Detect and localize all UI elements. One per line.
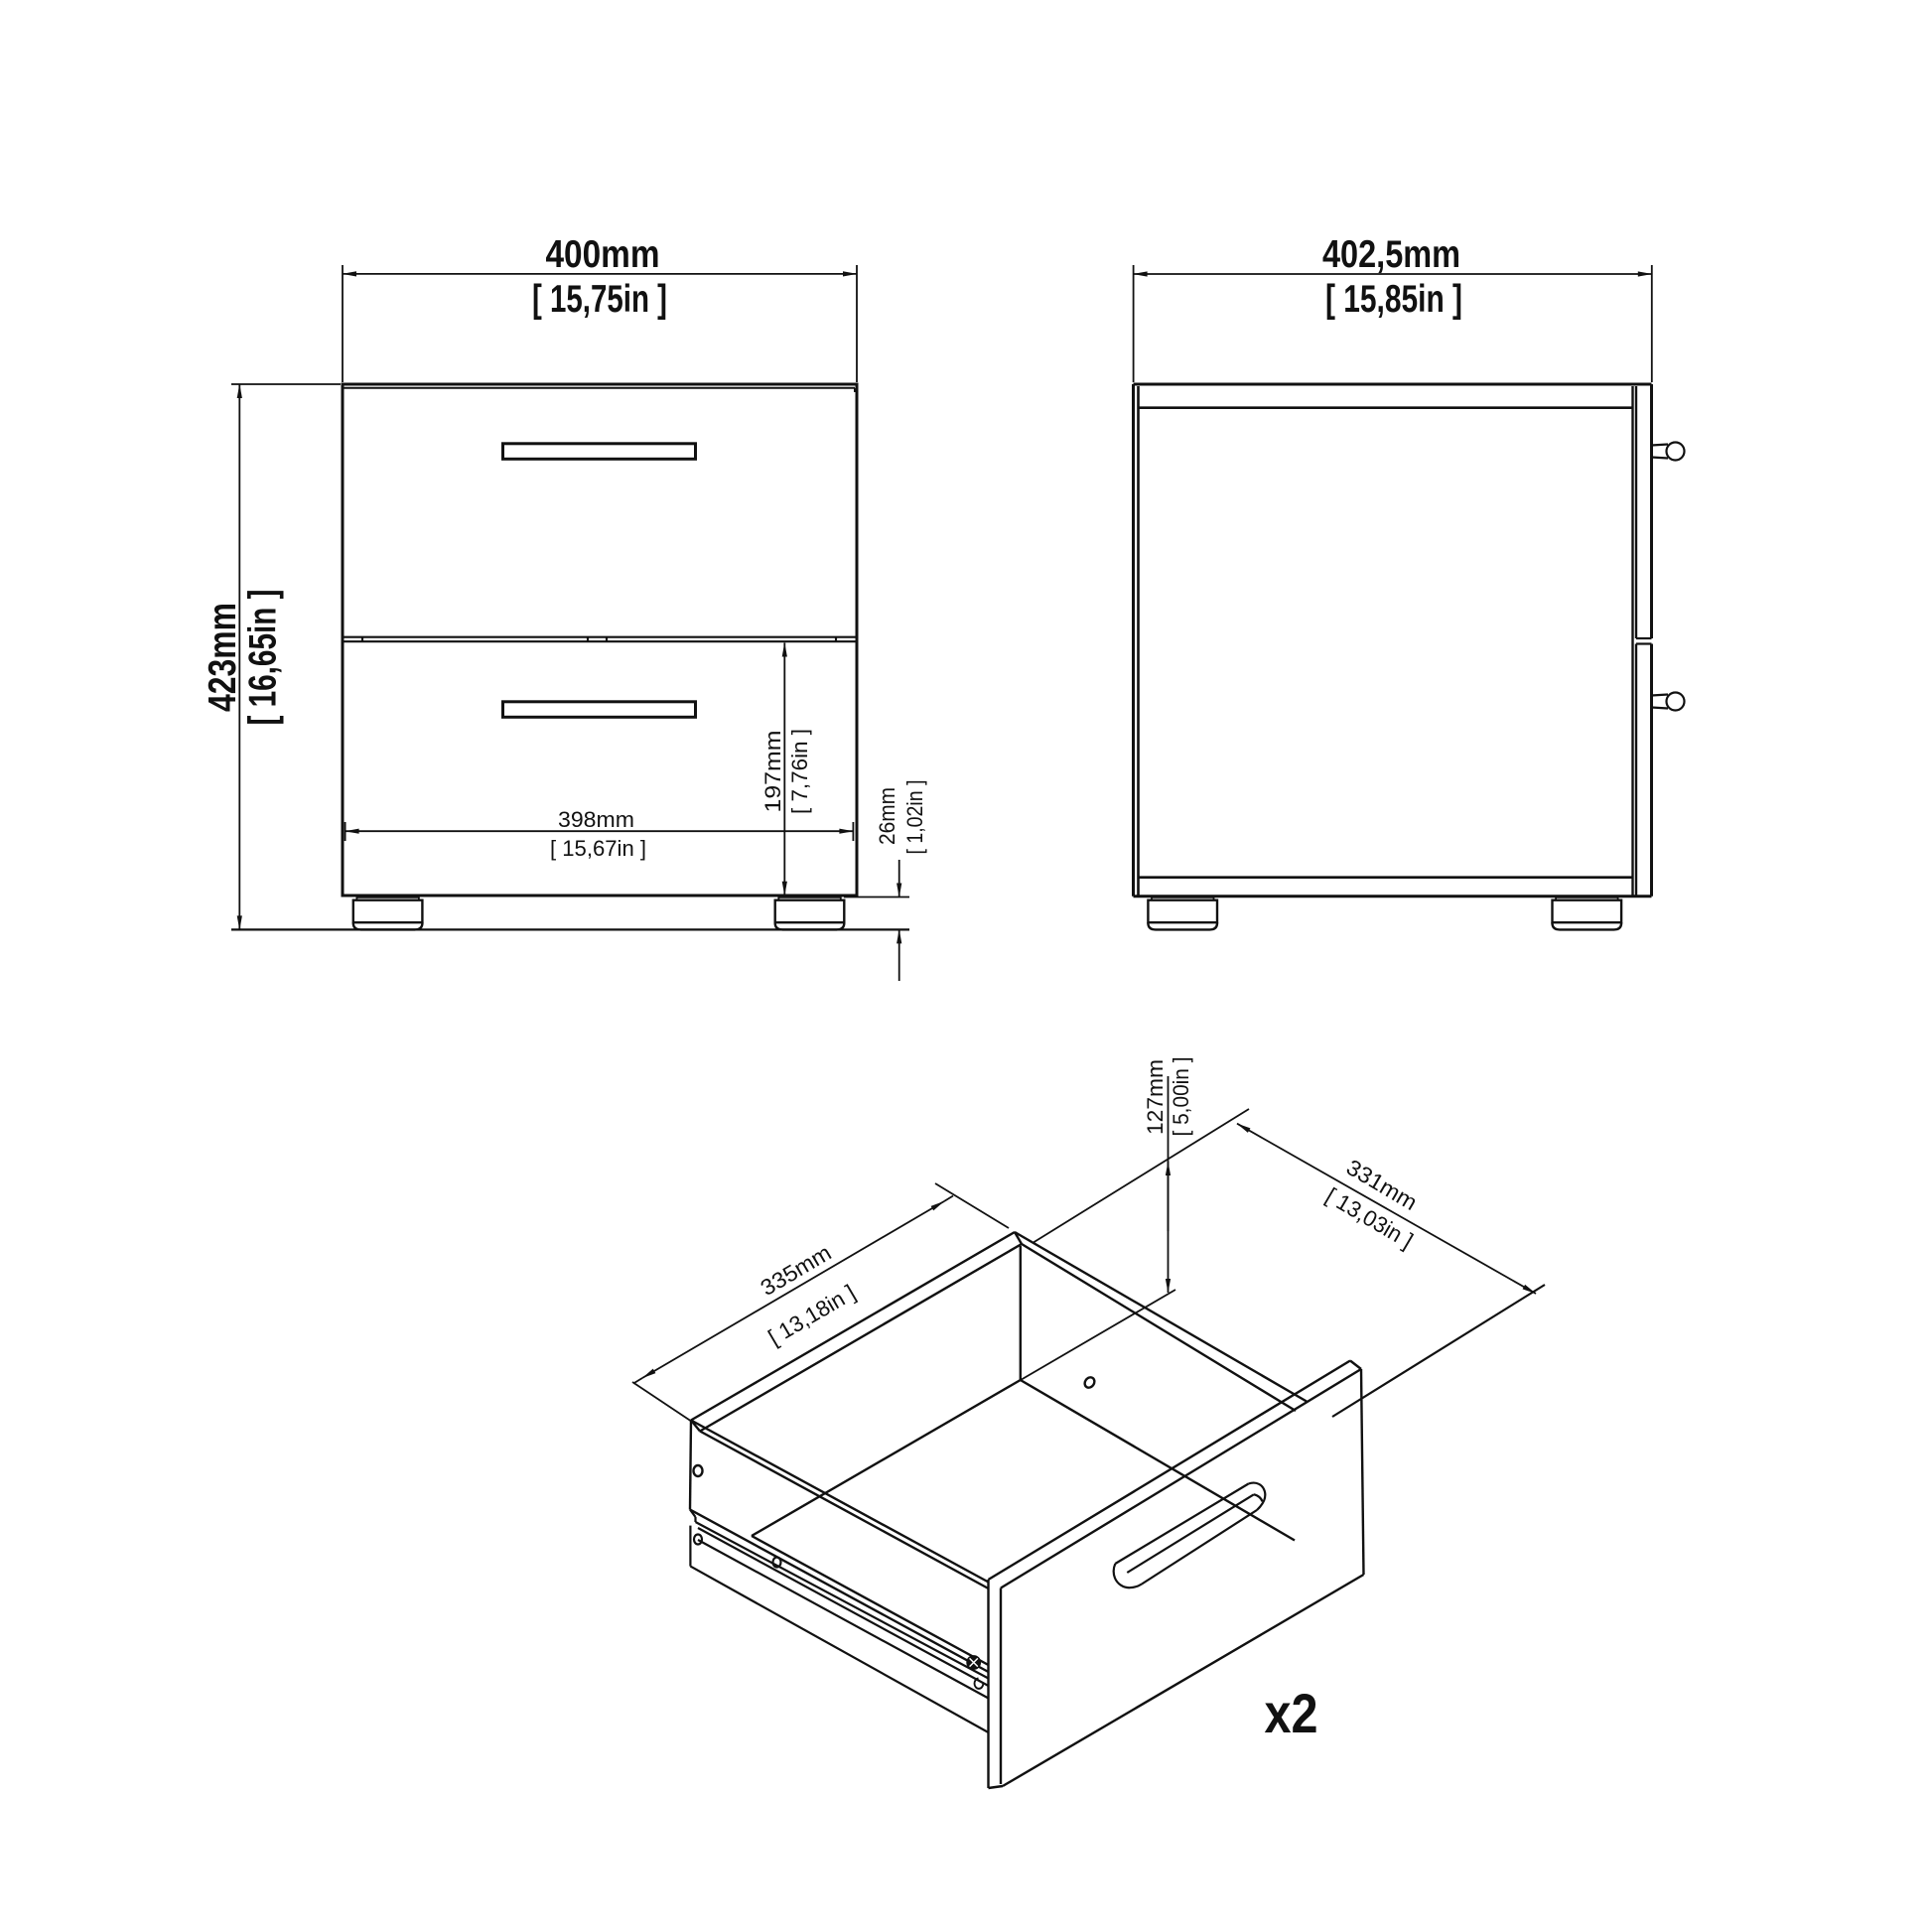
svg-text:[ 7,76in ]: [ 7,76in ] (787, 729, 812, 814)
svg-text:[ 16,65in ]: [ 16,65in ] (242, 590, 285, 726)
svg-text:[ 5,00in ]: [ 5,00in ] (1169, 1057, 1193, 1137)
svg-text:400mm: 400mm (546, 233, 660, 276)
svg-text:197mm: 197mm (760, 731, 785, 813)
svg-text:398mm: 398mm (558, 807, 634, 832)
svg-text:127mm: 127mm (1143, 1059, 1168, 1135)
svg-text:[ 1,02in ]: [ 1,02in ] (902, 780, 927, 855)
svg-text:423mm: 423mm (202, 603, 244, 712)
svg-text:x2: x2 (1265, 1682, 1318, 1744)
svg-text:335mm: 335mm (757, 1240, 836, 1301)
svg-text:26mm: 26mm (875, 787, 899, 845)
svg-text:[ 15,67in ]: [ 15,67in ] (550, 836, 646, 861)
svg-text:[ 15,75in ]: [ 15,75in ] (532, 278, 667, 321)
svg-text:[ 15,85in ]: [ 15,85in ] (1325, 278, 1462, 321)
svg-text:402,5mm: 402,5mm (1322, 233, 1460, 276)
